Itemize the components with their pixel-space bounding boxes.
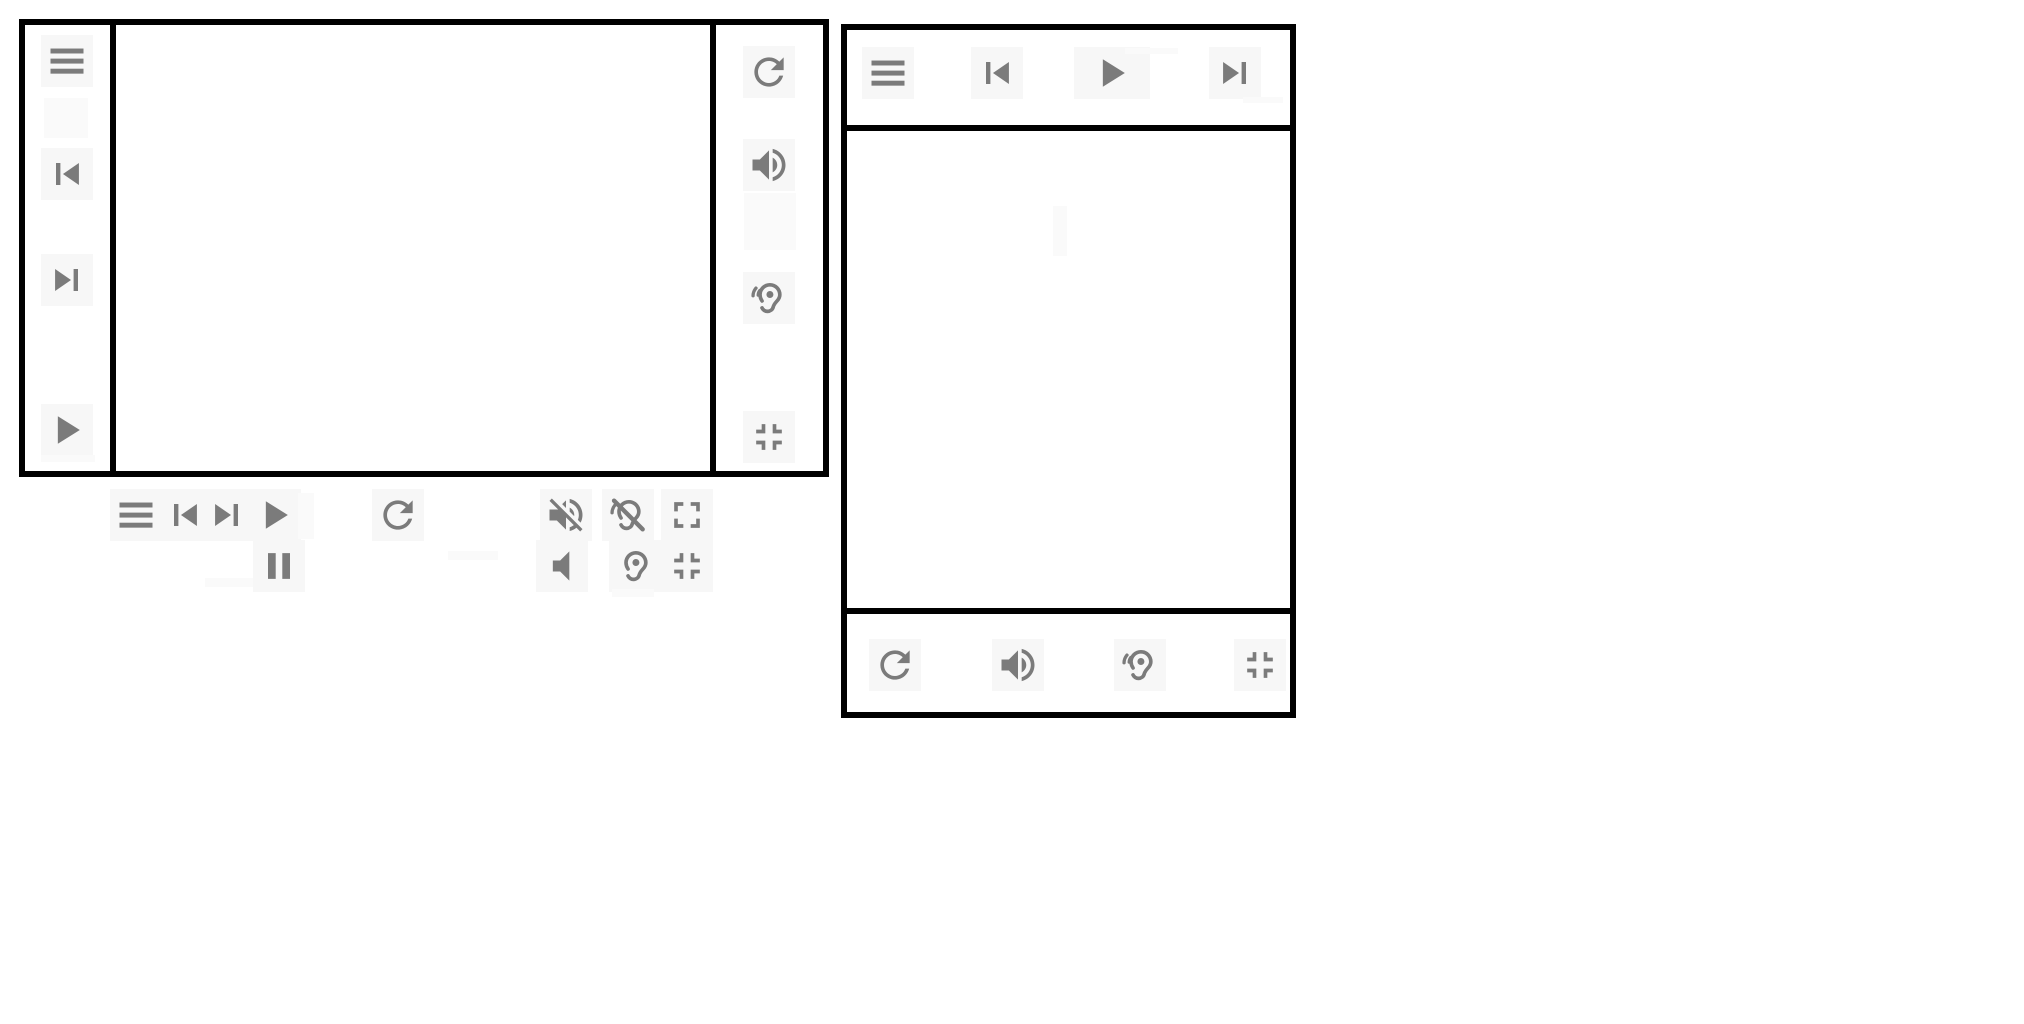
skip-next-icon	[45, 258, 89, 302]
menu-button[interactable]	[862, 47, 914, 99]
hearing-icon	[1118, 643, 1162, 687]
refresh-button[interactable]	[743, 46, 795, 98]
volume-mute-icon	[540, 544, 584, 588]
artifact	[1053, 206, 1067, 256]
play-icon	[1090, 51, 1134, 95]
volume-off-button[interactable]	[540, 489, 592, 541]
menu-button[interactable]	[110, 489, 162, 541]
skip-previous-button[interactable]	[41, 148, 93, 200]
pause-button[interactable]	[253, 540, 305, 592]
artifact	[205, 578, 253, 587]
menu-button[interactable]	[41, 35, 93, 87]
artifact	[1243, 97, 1283, 103]
volume-up-icon	[747, 143, 791, 187]
left-player-panel	[19, 19, 829, 477]
refresh-icon	[747, 50, 791, 94]
menu-icon	[45, 39, 89, 83]
artifact	[298, 493, 314, 539]
fullscreen-exit-button[interactable]	[743, 411, 795, 463]
fullscreen-exit-button[interactable]	[1234, 639, 1286, 691]
left-panel-left-column-divider	[110, 25, 116, 471]
artifact	[41, 455, 95, 462]
right-panel-bottom-divider	[847, 608, 1290, 614]
artifact	[448, 551, 498, 560]
fullscreen-exit-button[interactable]	[661, 540, 713, 592]
skip-next-button[interactable]	[201, 489, 253, 541]
hearing-button[interactable]	[743, 272, 795, 324]
fullscreen-exit-icon	[665, 544, 709, 588]
volume-mute-button[interactable]	[536, 540, 588, 592]
empty-chip	[744, 193, 796, 250]
volume-up-icon	[996, 643, 1040, 687]
menu-icon	[114, 493, 158, 537]
hearing-icon	[747, 276, 791, 320]
refresh-icon	[873, 643, 917, 687]
volume-off-icon	[544, 493, 588, 537]
right-panel-top-divider	[847, 125, 1290, 131]
hearing-disabled-icon	[606, 493, 650, 537]
skip-previous-button[interactable]	[971, 47, 1023, 99]
skip-next-button[interactable]	[1209, 47, 1261, 99]
play-icon	[45, 408, 89, 452]
skip-previous-icon	[975, 51, 1019, 95]
play-icon	[253, 493, 297, 537]
artifact	[612, 589, 654, 597]
play-button[interactable]	[41, 404, 93, 456]
refresh-button[interactable]	[869, 639, 921, 691]
fullscreen-exit-icon	[747, 415, 791, 459]
play-button[interactable]	[249, 489, 301, 541]
hearing-button[interactable]	[609, 540, 661, 592]
volume-button[interactable]	[992, 639, 1044, 691]
skip-next-icon	[1213, 51, 1257, 95]
skip-next-icon	[205, 493, 249, 537]
hearing-button[interactable]	[1114, 639, 1166, 691]
skip-previous-icon	[45, 152, 89, 196]
fullscreen-icon	[665, 493, 709, 537]
play-button[interactable]	[1074, 47, 1150, 99]
refresh-icon	[376, 493, 420, 537]
hearing-no-waves-icon	[613, 544, 657, 588]
screen	[0, 0, 2024, 1024]
artifact	[1125, 48, 1178, 54]
hearing-disabled-button[interactable]	[602, 489, 654, 541]
refresh-button[interactable]	[372, 489, 424, 541]
fullscreen-exit-icon	[1238, 643, 1282, 687]
empty-chip	[44, 98, 88, 138]
pause-icon	[257, 544, 301, 588]
skip-next-button[interactable]	[41, 254, 93, 306]
menu-icon	[866, 51, 910, 95]
fullscreen-button[interactable]	[661, 489, 713, 541]
left-panel-right-column-divider	[710, 25, 716, 471]
volume-button[interactable]	[743, 139, 795, 191]
